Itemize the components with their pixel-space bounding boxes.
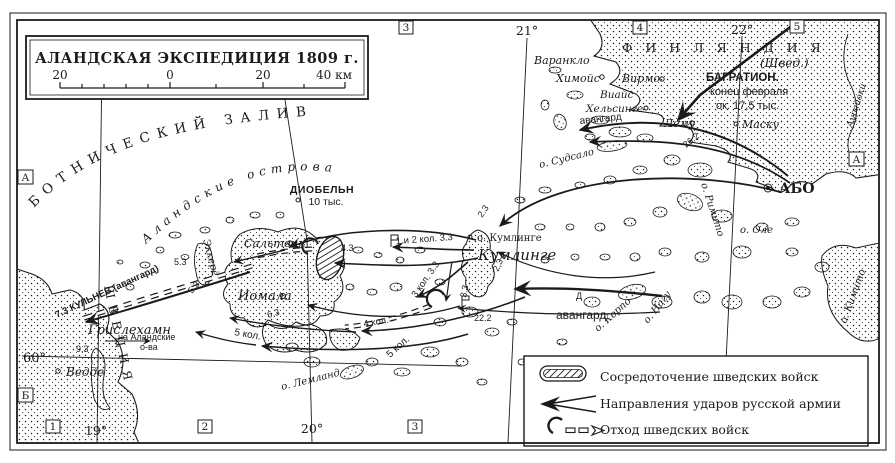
map-page: БОТНИЧЕСКИЙ ЗАЛИВ Аландские острова ФИНЛ… — [0, 0, 895, 463]
place-kumlinge-town: Кумлинге — [477, 246, 556, 264]
finland-note-label: (Швед.) — [760, 56, 809, 70]
place-virmo: Вирмо — [621, 72, 660, 85]
scale-label-20r: 20 — [255, 68, 270, 82]
legend-concentration-symbol — [540, 366, 586, 381]
grid-lon-20: 20° — [301, 421, 323, 436]
date-9-3: 9.3 — [76, 344, 89, 354]
grid-left-a: А — [22, 172, 30, 184]
place-abo: АБО — [779, 181, 815, 197]
map-title: АЛАНДСКАЯ ЭКСПЕДИЦИЯ 1809 г. — [35, 50, 359, 67]
grid-bottom-1: 1 — [50, 421, 57, 433]
legend: Сосредоточение шведских войск Направлени… — [524, 356, 868, 446]
legend-item-concentration: Сосредоточение шведских войск — [600, 369, 819, 384]
place-lemu: Лему — [663, 117, 696, 130]
grid-lon-22: 22° — [731, 22, 753, 37]
grid-bottom-3: 3 — [412, 421, 419, 433]
date-5-3a: 5.3 — [174, 257, 187, 267]
svg-text:БОТНИЧЕСКИЙ ЗАЛИВ: БОТНИЧЕСКИЙ ЗАЛИВ — [26, 103, 314, 210]
aland-expedition-map: БОТНИЧЕСКИЙ ЗАЛИВ Аландские острова ФИНЛ… — [0, 0, 895, 463]
grid-top-4: 4 — [637, 22, 644, 34]
column-5-west-label: 5 кол. — [385, 334, 412, 360]
legend-item-retreat: Отход шведских войск — [600, 422, 749, 437]
gulf-of-bothnia-label: БОТНИЧЕСКИЙ ЗАЛИВ — [26, 103, 314, 210]
place-ole: о. Оле — [740, 225, 773, 236]
grid-left-b: Б — [22, 390, 30, 402]
place-kumlinge-island: о. Кумлинге — [477, 233, 542, 244]
grid-top-3: 3 — [403, 22, 410, 34]
column-4-label: 4 кол. — [363, 315, 390, 330]
date-2-3a: 2.3 — [475, 203, 490, 219]
bagration-name: БАГРАТИОН. — [706, 72, 779, 84]
column-1-2-label: 1 и 2 кол. 3.3 — [395, 232, 453, 247]
place-jomala: Иомала — [237, 289, 292, 304]
place-saltvik: Сальтвик — [244, 236, 305, 250]
grid-bottom-2: 2 — [202, 421, 209, 433]
scale-label-20l: 20 — [52, 68, 67, 82]
to-aland-label2: о-ва — [140, 342, 158, 352]
grid-right-a: А — [853, 154, 861, 166]
d-mark-label: Д — [576, 291, 582, 301]
grid-lon-19: 19° — [85, 423, 107, 438]
scale-label-40: 40 км — [316, 68, 352, 82]
bagration-date: конец февраля — [710, 86, 788, 98]
date-4-3: 4.3 — [341, 243, 354, 253]
grid-top-5: 5 — [794, 21, 801, 33]
place-sudsalo: о. Судсало — [538, 147, 595, 171]
grid-lon-21: 21° — [516, 23, 538, 38]
place-vedde: Ведде — [65, 365, 104, 379]
column-5-south-label: 5 кол. — [233, 327, 261, 342]
place-masku: Маску — [741, 118, 780, 131]
to-aland-label: на Аландские — [118, 332, 175, 342]
grid-lat-60: 60° — [23, 351, 46, 366]
vanguard-east-label: авангард — [556, 308, 606, 322]
title-box: АЛАНДСКАЯ ЭКСПЕДИЦИЯ 1809 г. 20 0 20 40 … — [26, 36, 368, 99]
dobeln-name: ДИОБЕЛЬН — [290, 184, 354, 196]
retreat-hook-icon — [427, 290, 444, 307]
date-22-2: 22.2 — [474, 313, 492, 323]
dobeln-strength: 10 тыс. — [308, 196, 343, 208]
place-himois: Химойс — [555, 72, 600, 85]
bagration-strength: ок. 17,5 тыс. — [716, 100, 779, 112]
legend-item-attack: Направления ударов русской армии — [600, 396, 841, 411]
finland-label: ФИНЛЯНДИЯ — [622, 40, 834, 55]
scale-label-0: 0 — [166, 68, 174, 82]
place-viais: Виайс — [599, 89, 634, 101]
place-varanklo: Варанкло — [533, 54, 590, 67]
